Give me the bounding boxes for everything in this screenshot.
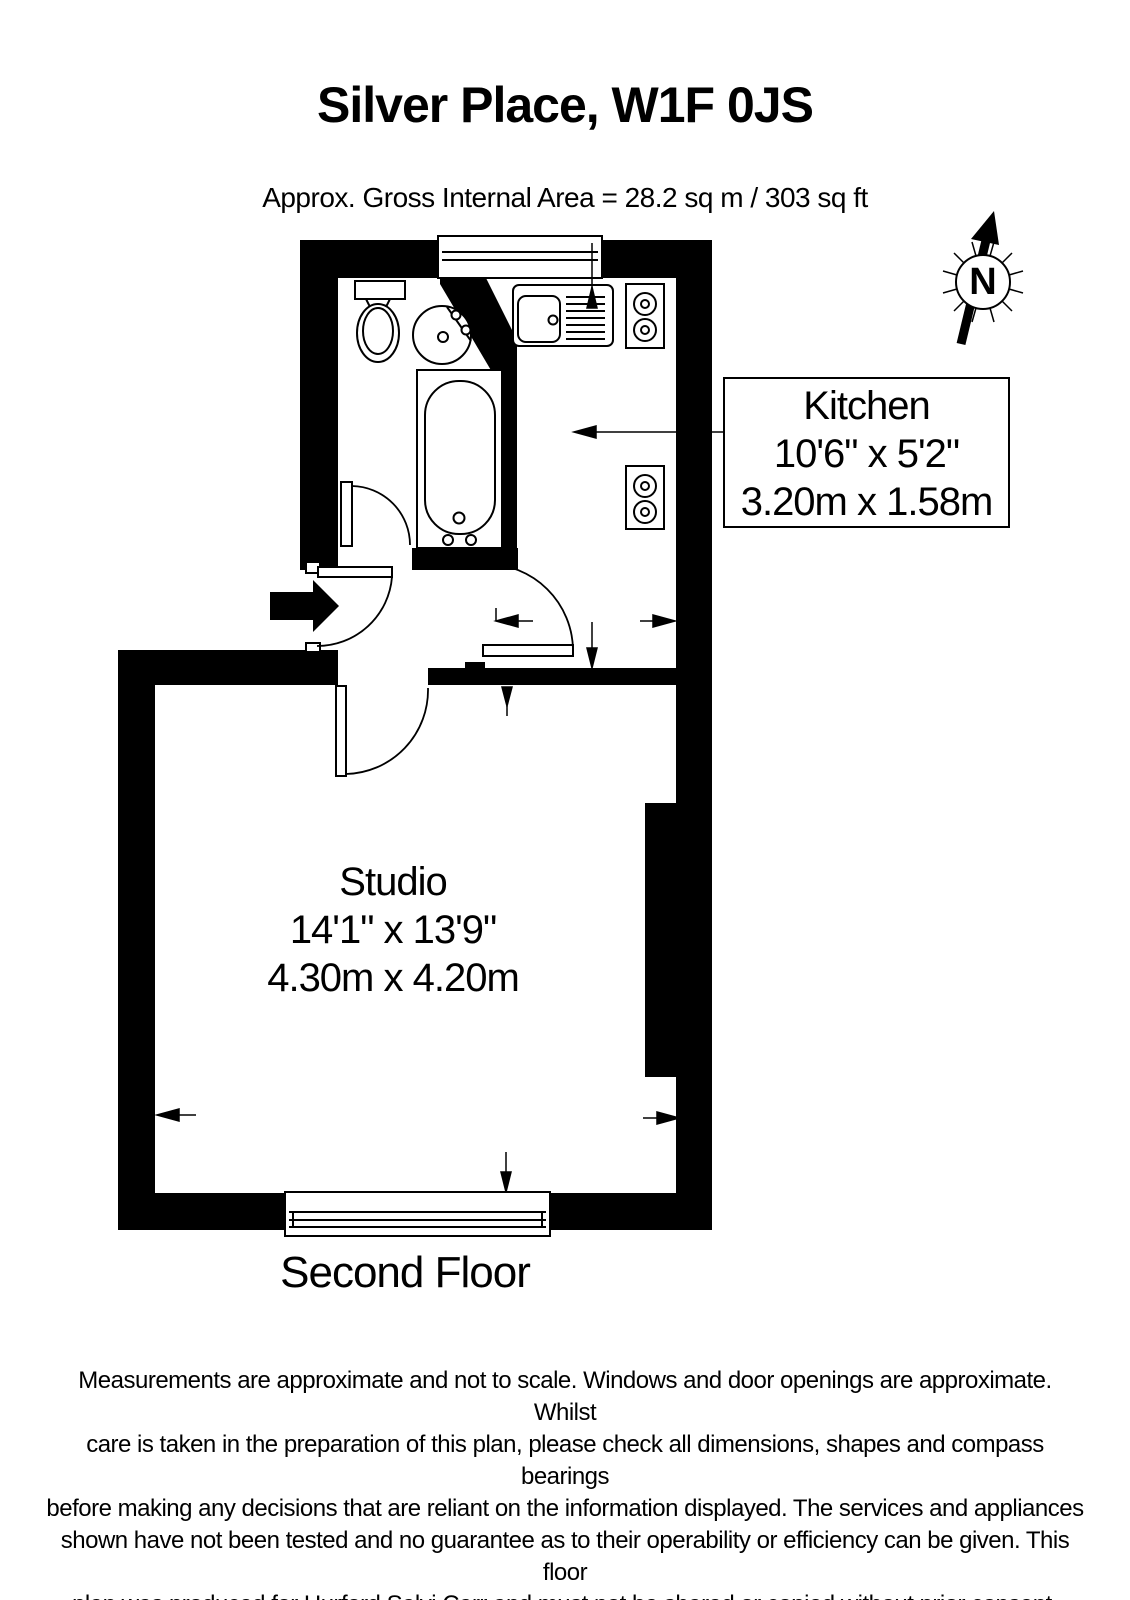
door-swing-icon-studio — [336, 686, 428, 776]
kitchen-label-box: Kitchen 10'6" x 5'2" 3.20m x 1.58m — [723, 377, 1010, 528]
wall-kitchen-door-stub — [465, 662, 485, 669]
area-subtitle: Approx. Gross Internal Area = 28.2 sq m … — [0, 182, 1130, 214]
measurement-arrow-icon-kitchen-left — [496, 608, 533, 627]
measurement-arrow-icon-kitchen-right — [640, 615, 675, 627]
entry-arrow-icon — [270, 580, 339, 632]
kitchen-room-name: Kitchen — [725, 382, 1008, 430]
disclaimer-line: before making any decisions that are rel… — [45, 1493, 1085, 1525]
measurement-arrow-icon-studio-top — [502, 687, 512, 716]
appliance-icon — [626, 466, 664, 529]
kitchen-dims-metric: 3.20m x 1.58m — [725, 478, 1008, 526]
studio-room-name: Studio — [218, 858, 568, 906]
disclaimer-line: Measurements are approximate and not to … — [45, 1365, 1085, 1429]
floor-label: Second Floor — [230, 1248, 580, 1298]
compass-north-letter: N — [961, 260, 1005, 304]
door-swing-icon-bathroom — [341, 482, 410, 546]
disclaimer-text: Measurements are approximate and not to … — [45, 1365, 1085, 1600]
wall-chimney-breast — [645, 803, 676, 1077]
wall-left-upper — [300, 240, 338, 570]
floorplan-drawing — [0, 0, 1130, 1600]
kitchen-dims-imperial: 10'6" x 5'2" — [725, 430, 1008, 478]
wall-right — [676, 240, 712, 1230]
page-title: Silver Place, W1F 0JS — [0, 76, 1130, 134]
bathtub-icon — [417, 370, 502, 548]
studio-label-block: Studio 14'1" x 13'9" 4.30m x 4.20m — [218, 858, 568, 1002]
kitchen-fixtures — [513, 284, 664, 529]
measurement-arrow-icon-kitchen-down — [587, 622, 597, 668]
disclaimer-line: plan was produced for Hurford Salvi Carr… — [45, 1589, 1085, 1600]
wall-studio-bottom-right — [550, 1193, 712, 1230]
disclaimer-line: care is taken in the preparation of this… — [45, 1429, 1085, 1493]
studio-dims-metric: 4.30m x 4.20m — [218, 954, 568, 1002]
toilet-icon — [355, 281, 405, 362]
measurement-arrow-icon-studio-bottom — [501, 1152, 511, 1192]
wall-studio-left — [118, 650, 155, 1230]
measurement-arrow-icon-studio-right — [643, 1112, 679, 1124]
window-icon-kitchen — [438, 236, 602, 278]
floorplan-page: Silver Place, W1F 0JS Approx. Gross Inte… — [0, 0, 1130, 1600]
basin-icon — [413, 306, 471, 364]
disclaimer-line: shown have not been tested and no guaran… — [45, 1525, 1085, 1589]
studio-dims-imperial: 14'1" x 13'9" — [218, 906, 568, 954]
hob-icon — [626, 284, 664, 348]
measurement-arrow-icon-studio-left — [157, 1109, 196, 1121]
wall-studio-bottom-left — [118, 1193, 285, 1230]
wall-studio-top-right — [428, 668, 676, 685]
window-icon-studio — [285, 1192, 550, 1236]
kitchen-sink-icon — [513, 285, 613, 346]
